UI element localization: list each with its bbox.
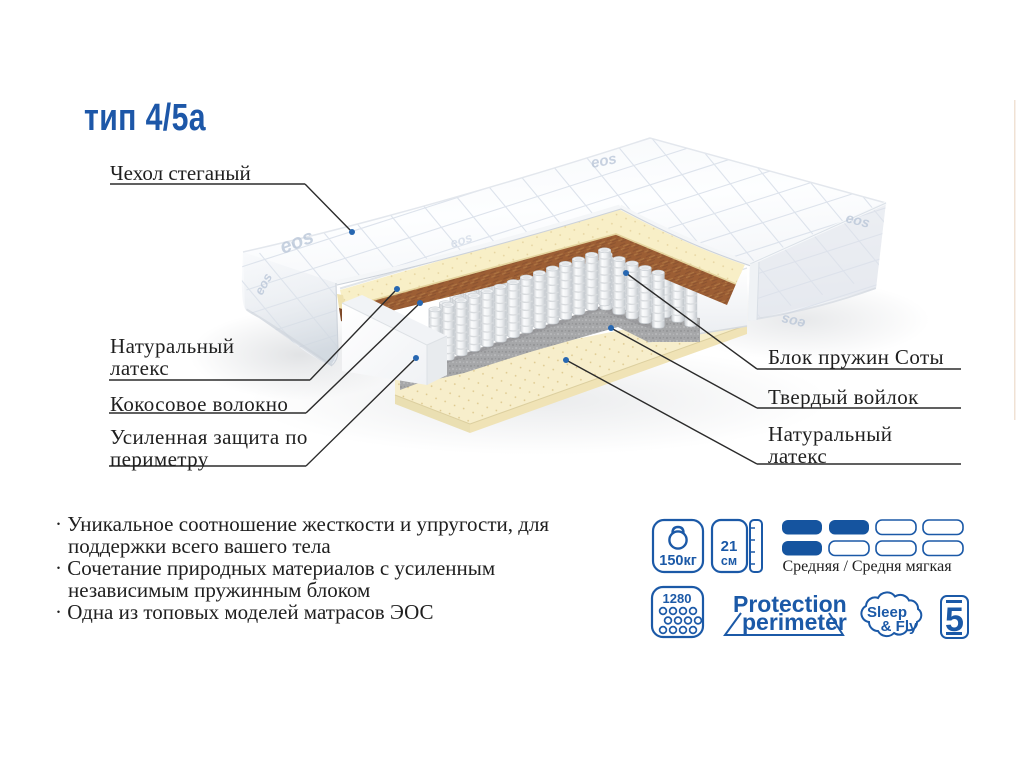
svg-text:& Fly: & Fly — [881, 618, 918, 635]
svg-text:21: 21 — [721, 538, 738, 555]
svg-text:см: см — [721, 554, 737, 568]
svg-text:150кг: 150кг — [659, 553, 697, 569]
svg-text:perimeter: perimeter — [742, 609, 847, 635]
svg-text:1280: 1280 — [663, 591, 692, 606]
